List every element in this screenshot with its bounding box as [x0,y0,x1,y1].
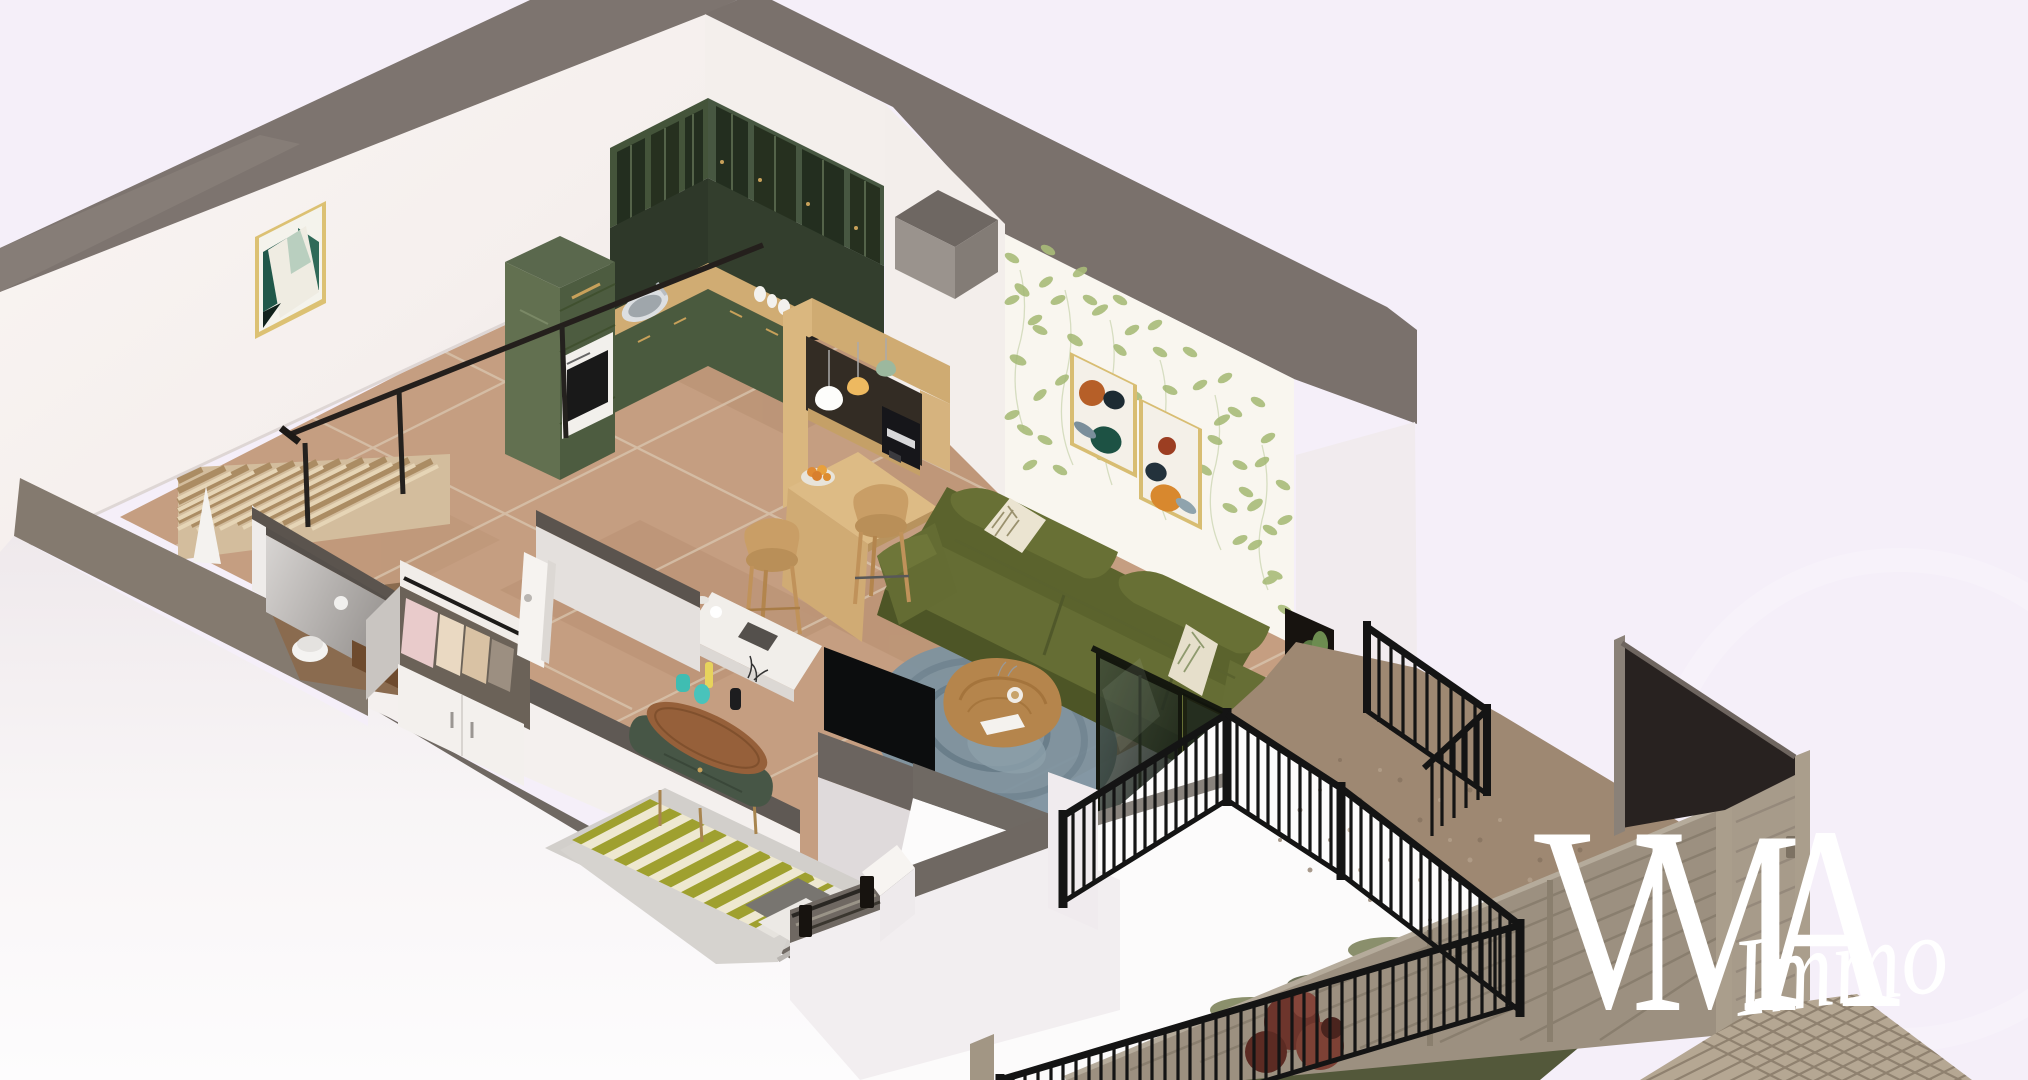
svg-text:Immo: Immo [1725,892,1954,1041]
